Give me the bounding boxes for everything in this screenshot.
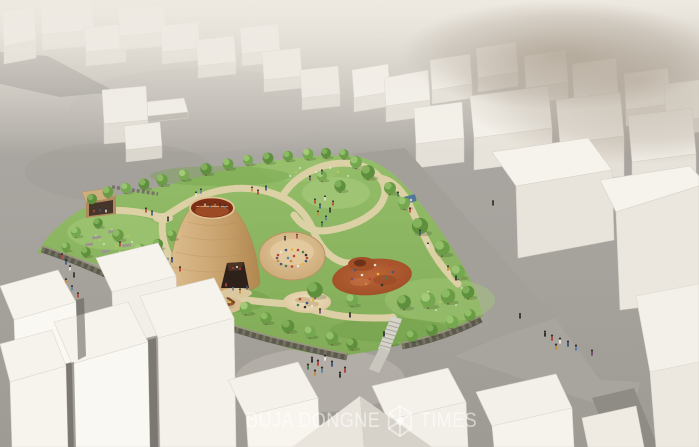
atmospheric-haze <box>0 0 699 165</box>
scene-svg <box>0 0 699 447</box>
hexagon-gem-icon <box>384 403 415 439</box>
watermark-text-left: BUJA DONGNE <box>246 409 380 433</box>
play-mound <box>259 232 325 280</box>
site-plan-rendering: BUJA DONGNE TIMES <box>0 0 699 447</box>
watermark-text-right: TIMES <box>420 409 477 433</box>
watermark: BUJA DONGNE TIMES <box>246 403 477 439</box>
dig-pit-cave <box>354 260 366 267</box>
path-junction <box>153 213 173 223</box>
